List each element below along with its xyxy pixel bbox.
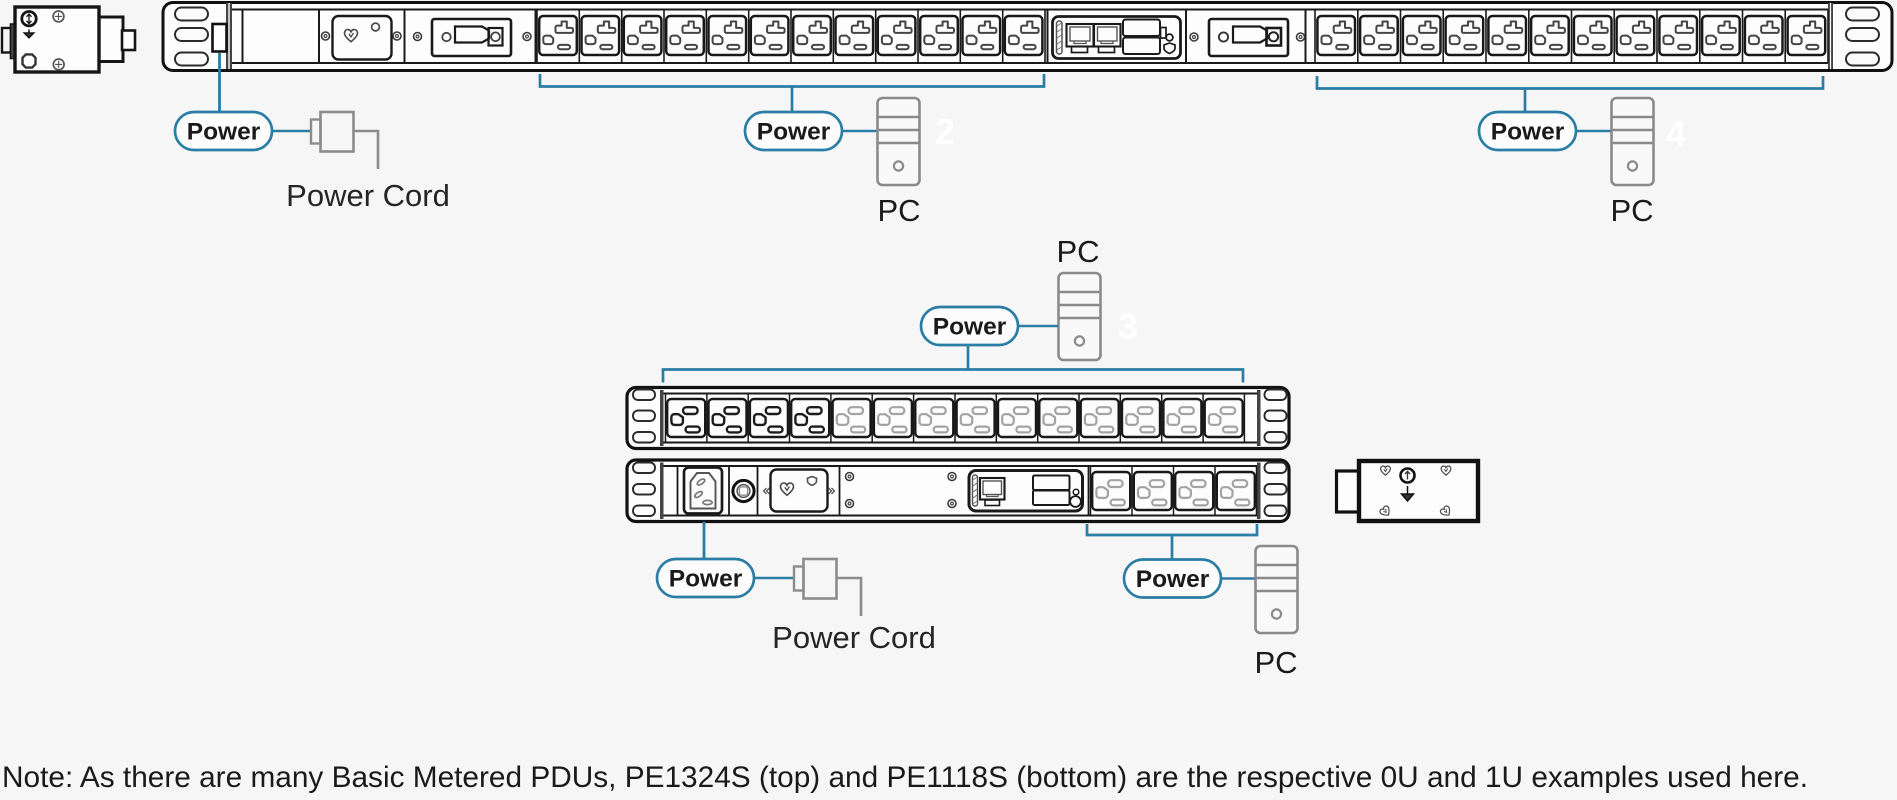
svg-text:Power: Power [1491, 119, 1565, 146]
svg-text:PC: PC [877, 193, 920, 228]
svg-text:Power Cord: Power Cord [286, 178, 450, 213]
svg-text:Note: As there are many Basic: Note: As there are many Basic Metered PD… [2, 761, 1808, 794]
svg-text:Power: Power [757, 119, 831, 146]
svg-text:3: 3 [1118, 306, 1138, 347]
svg-text:Power: Power [187, 119, 261, 146]
svg-text:Power: Power [669, 566, 743, 593]
svg-text:Power Cord: Power Cord [772, 620, 936, 655]
svg-text:2: 2 [935, 111, 955, 152]
svg-text:PC: PC [1254, 645, 1297, 680]
svg-text:Power: Power [933, 314, 1007, 341]
svg-text:PC: PC [1056, 234, 1099, 269]
svg-text:Power: Power [1136, 566, 1210, 593]
svg-text:PC: PC [1610, 193, 1653, 228]
svg-text:4: 4 [1666, 113, 1686, 154]
